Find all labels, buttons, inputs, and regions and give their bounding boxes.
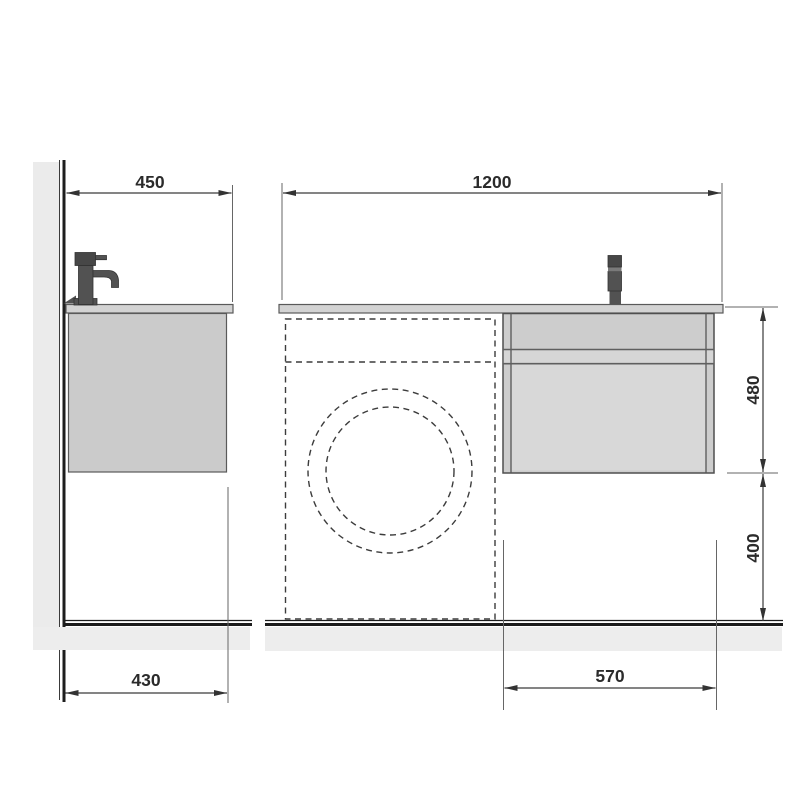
cabinet-front <box>503 314 714 474</box>
washing-machine-body <box>286 319 496 619</box>
dim-label-400: 400 <box>743 533 763 562</box>
front-view: 1200 570 480 400 <box>265 172 783 710</box>
dim-label-570: 570 <box>595 666 624 686</box>
floor-shadow-side <box>33 627 250 650</box>
washing-machine-door-outer <box>308 389 472 553</box>
side-view: 450 430 <box>33 160 252 703</box>
countertop-side <box>66 305 233 314</box>
dimension-430: 430 <box>66 487 229 703</box>
faucet-front-stem <box>610 290 622 305</box>
dim-label-480: 480 <box>743 375 763 404</box>
faucet-body <box>79 266 94 305</box>
dim-label-450: 450 <box>135 172 164 192</box>
faucet-head <box>75 253 96 266</box>
dimension-1200: 1200 <box>282 172 722 302</box>
countertop-front <box>279 305 723 314</box>
drawing-canvas: 450 430 <box>0 0 800 800</box>
faucet-front <box>608 256 622 305</box>
dimension-400: 400 <box>743 474 763 621</box>
wall-fill <box>33 162 59 650</box>
faucet-front-collar <box>608 267 622 272</box>
faucet-spout <box>93 271 119 288</box>
faucet-side <box>64 253 119 306</box>
dim-label-430: 430 <box>131 670 160 690</box>
cabinet-front-drawer <box>512 365 706 471</box>
technical-drawing-vanity-washing-machine: 450 430 <box>0 0 800 800</box>
cabinet-side <box>69 314 227 473</box>
faucet-front-body <box>608 272 622 292</box>
dimension-480: 480 <box>725 307 778 473</box>
faucet-lever <box>96 256 107 260</box>
faucet-front-cap <box>608 256 622 268</box>
washing-machine-door-inner <box>326 407 454 535</box>
washing-machine-outline <box>286 319 496 619</box>
dim-label-1200: 1200 <box>473 172 512 192</box>
cabinet-front-rail <box>504 351 714 364</box>
floor-shadow-front <box>265 627 782 651</box>
